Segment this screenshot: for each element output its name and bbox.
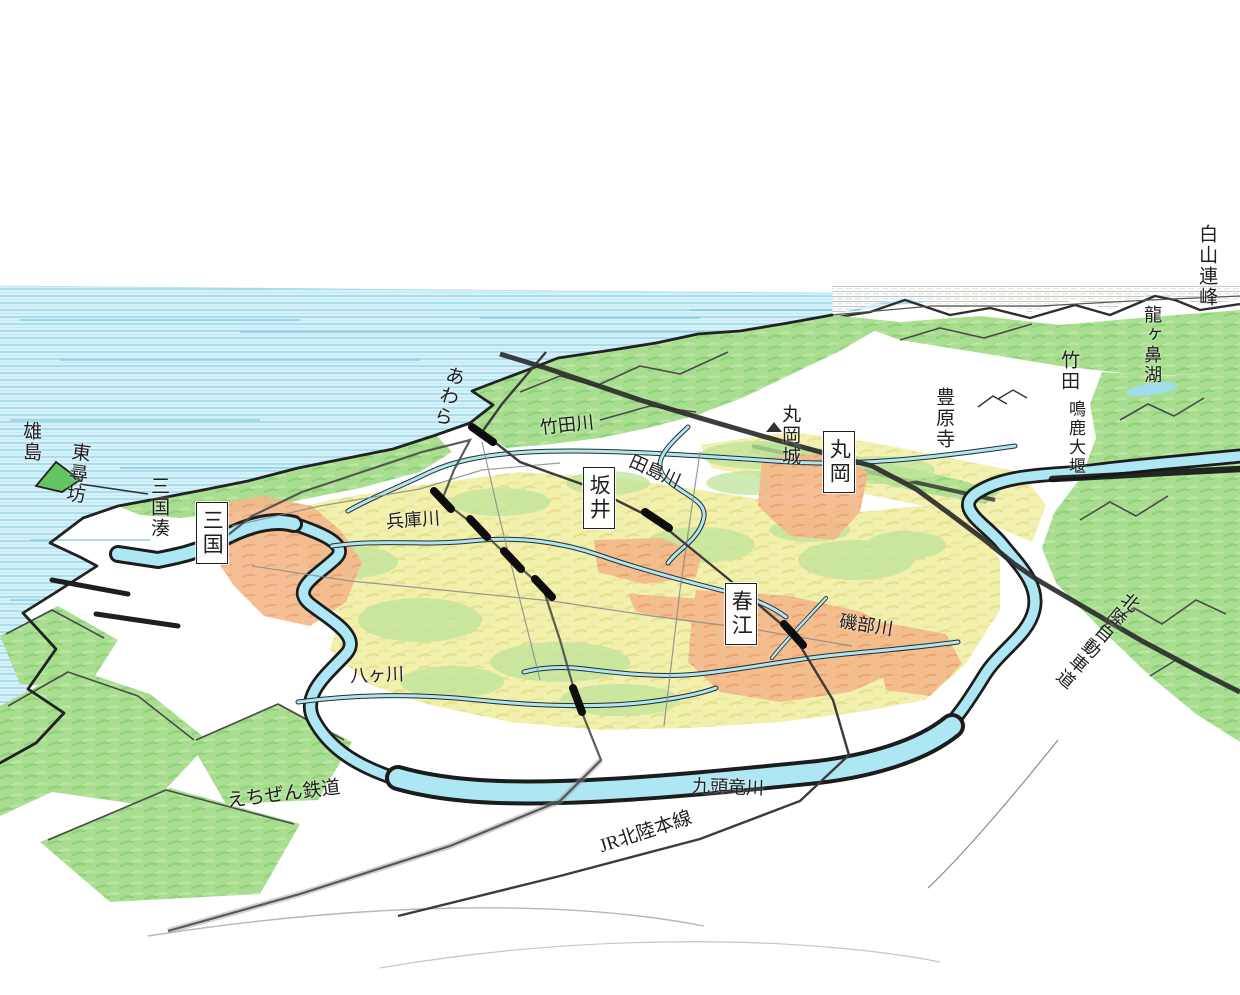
label-takeda: 竹田 <box>1058 350 1078 392</box>
label-hyogo-river: 兵庫川 <box>385 509 440 532</box>
label-toyohara-temple: 豊原寺 <box>933 387 953 450</box>
label-maruoka: 丸岡 <box>823 431 855 493</box>
label-kuzuryu-river: 九頭竜川 <box>692 777 765 799</box>
label-hakusan-range: 白山連峰 <box>1196 224 1216 308</box>
label-maruoka-castle: 丸岡城 <box>779 404 799 467</box>
label-hakka-river: 八ヶ川 <box>350 665 405 686</box>
label-ryugahana-lake: 龍ヶ鼻湖 <box>1142 305 1161 385</box>
label-mikuni: 三国 <box>196 502 228 564</box>
label-harue: 春江 <box>725 583 757 645</box>
label-sakai: 坂井 <box>583 467 615 529</box>
label-oshima: 雄島 <box>20 421 40 463</box>
label-naruka-weir: 鳴鹿大堰 <box>1066 400 1084 476</box>
toyohara-temple-mark <box>978 390 1027 407</box>
label-mikuni-minato: 三国湊 <box>148 476 168 539</box>
map-canvas: 三国 坂井 丸岡 春江 雄島 東尋坊 三国湊 あわら 丸岡城 豊原寺 竹田 鳴鹿… <box>0 0 1240 995</box>
